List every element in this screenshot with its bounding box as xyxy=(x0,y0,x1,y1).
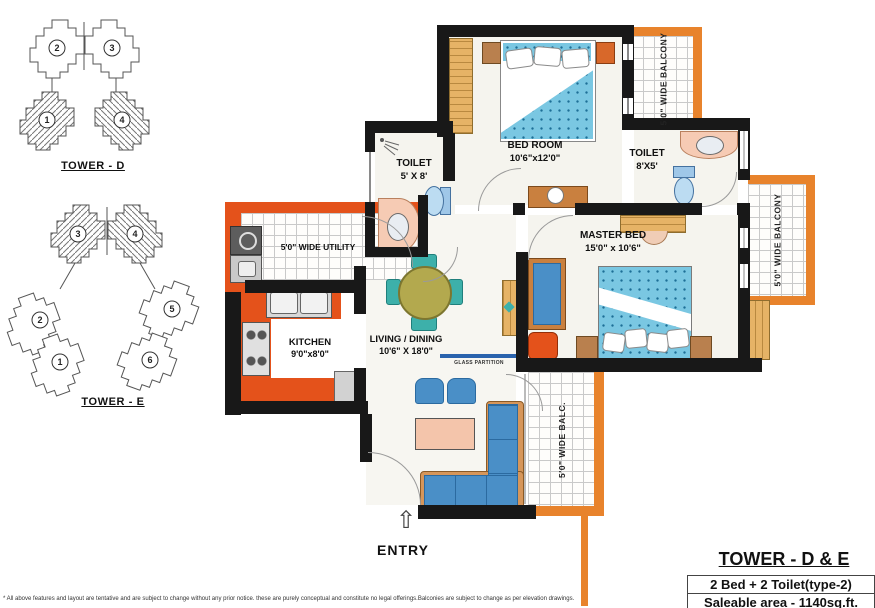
wall-segment xyxy=(245,280,357,293)
master-ottoman xyxy=(528,332,558,360)
room-name: KITCHEN xyxy=(268,337,352,349)
living-chair xyxy=(415,378,444,404)
window xyxy=(623,98,633,114)
sink-basin xyxy=(270,292,298,314)
entry-arrow-icon: ⇧ xyxy=(392,506,420,536)
window xyxy=(740,264,748,288)
master-seat-cushion xyxy=(533,263,561,325)
entry-label: ENTRY xyxy=(368,542,438,558)
wall-segment xyxy=(354,368,366,414)
room-name: TOILET xyxy=(618,148,676,161)
room-dims: 10'6" X 18'0" xyxy=(366,346,446,357)
balcony-bottom-border xyxy=(594,370,604,516)
window xyxy=(365,152,375,202)
dressing-stool xyxy=(547,187,564,204)
shower-icon xyxy=(378,136,402,160)
wall-segment xyxy=(516,252,528,360)
room-dims: 15'0" x 10'6" xyxy=(548,243,678,255)
wall-segment xyxy=(738,298,750,360)
wall-segment xyxy=(225,292,241,415)
wall-segment xyxy=(437,25,634,37)
bed-pillow xyxy=(505,47,534,70)
master-bed-label: MASTER BED 15'0" x 10'6" xyxy=(548,230,678,254)
balcony-right-border xyxy=(748,175,814,184)
toilet2-basin xyxy=(680,131,738,159)
floor-plan-sheet: 2 3 1 4 TOWER - D 3 4 2 1 5 6 TOWER - xyxy=(0,0,875,608)
room-name: LIVING / DINING xyxy=(366,334,446,346)
sheet-title: TOWER - D & E xyxy=(695,549,873,570)
sink-basin xyxy=(238,261,256,277)
tower-d-unit-4: 4 xyxy=(119,115,124,125)
title-block-box: 2 Bed + 2 Toilet(type-2) Saleable area -… xyxy=(687,575,875,608)
master-nightstand-right xyxy=(690,336,712,360)
sink-basin xyxy=(300,292,328,314)
bed-pillow xyxy=(533,46,562,67)
console-vase xyxy=(503,301,514,312)
tower-d-unit-3: 3 xyxy=(109,43,114,53)
wall-segment xyxy=(737,203,750,215)
balcony-bottom-border xyxy=(528,506,604,516)
tower-d-unit-1: 1 xyxy=(44,115,49,125)
tower-e-unit-4: 4 xyxy=(132,229,137,239)
wall-segment xyxy=(225,401,368,414)
glass-partition-line xyxy=(440,354,518,358)
wall-segment xyxy=(622,118,750,130)
room-name: BED ROOM xyxy=(455,140,615,153)
bedroom-label: BED ROOM 10'6"x12'0" xyxy=(455,140,615,164)
tower-e-unit-3: 3 xyxy=(75,229,80,239)
living-chair xyxy=(447,378,476,404)
wall-segment xyxy=(354,266,366,314)
orange-divider-line xyxy=(581,516,588,606)
utility-sink xyxy=(230,255,262,283)
bed-pillow xyxy=(602,332,626,354)
room-dims: 5' X 8' xyxy=(375,171,453,183)
tower-e-key-plan: 3 4 2 1 5 6 xyxy=(0,203,230,398)
washer-door xyxy=(239,232,257,250)
basin-bowl xyxy=(696,136,724,155)
saleable-area-text: Saleable area - 1140sq.ft. xyxy=(688,594,874,608)
glass-partition-label: GLASS PARTITION xyxy=(440,360,518,366)
wc-bowl xyxy=(674,177,694,205)
living-label: LIVING / DINING 10'6" X 18'0" xyxy=(366,334,446,357)
living-center-table xyxy=(415,418,475,450)
bed-pillow xyxy=(624,328,648,349)
balcony-top-right-border xyxy=(693,27,702,120)
bedroom-nightstand-right xyxy=(596,42,615,64)
room-name: MASTER BED xyxy=(548,230,678,243)
utility-label: 5'0" WIDE UTILITY xyxy=(262,242,374,253)
window xyxy=(623,44,633,60)
balcony-top-right-label: 5'0" WIDE BALCONY xyxy=(640,40,686,118)
kitchen-label: KITCHEN 9'0"x8'0" xyxy=(268,337,352,360)
living-console xyxy=(502,280,517,336)
balcony-right-label: 5'0" WIDE BALCONY xyxy=(754,200,800,280)
tower-e-unit-1: 1 xyxy=(57,357,62,367)
wall-segment xyxy=(418,505,536,519)
tower-e-unit-2: 2 xyxy=(37,315,42,325)
wall-segment xyxy=(575,203,702,215)
wall-segment xyxy=(365,121,453,133)
bedroom-bed xyxy=(500,40,596,142)
master-nightstand-left xyxy=(576,336,598,360)
room-dims: 10'6"x12'0" xyxy=(455,153,615,165)
balcony-right-border xyxy=(806,175,815,305)
master-seat xyxy=(528,258,566,330)
tower-e-unit-6: 6 xyxy=(147,355,152,365)
tower-e-unit-5: 5 xyxy=(169,304,174,314)
tower-e-label: TOWER - E xyxy=(68,396,158,408)
wall-segment xyxy=(516,358,762,372)
bed-pillow xyxy=(666,328,690,350)
bed-pillow xyxy=(561,48,590,69)
tower-d-unit-2: 2 xyxy=(54,43,59,53)
disclaimer-text: * All above features and layout are tent… xyxy=(3,596,623,602)
room-dims: 8'X5' xyxy=(618,161,676,173)
window xyxy=(740,131,748,169)
balcony-label-text: 5'0" WIDE BALC. xyxy=(557,402,567,478)
bedroom-wardrobe xyxy=(449,38,473,134)
room-name: TOILET xyxy=(375,158,453,171)
room-dims: 9'0"x8'0" xyxy=(268,349,352,360)
tower-d-key-plan: 2 3 1 4 xyxy=(8,12,170,160)
unit-type-text: 2 Bed + 2 Toilet(type-2) xyxy=(688,576,874,594)
toilet-master-label: TOILET 8'X5' xyxy=(618,148,676,172)
balcony-bottom-label: 5'0" WIDE BALC. xyxy=(540,400,584,480)
toilet-small-label: TOILET 5' X 8' xyxy=(375,158,453,182)
kitchen-counter-bottom xyxy=(241,378,339,401)
bedroom-nightstand-left xyxy=(482,42,501,64)
washing-machine xyxy=(230,226,262,255)
window xyxy=(740,228,748,248)
balcony-label-text: 5'0" WIDE BALCONY xyxy=(772,194,782,287)
kitchen-stove xyxy=(242,322,270,376)
l-sofa-horizontal xyxy=(424,475,518,508)
balcony-label-text: 5'0" WIDE BALCONY xyxy=(658,33,668,126)
tower-d-label: TOWER - D xyxy=(48,160,138,172)
master-bed xyxy=(598,266,692,362)
